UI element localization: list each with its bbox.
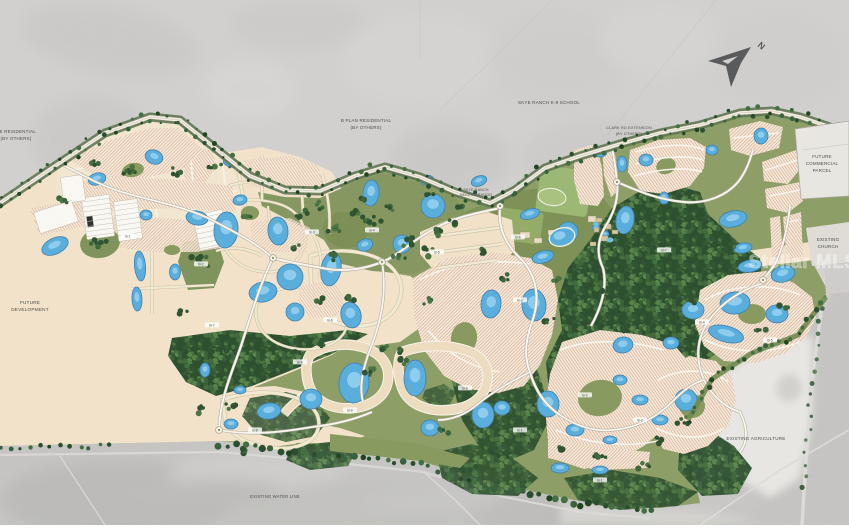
svg-text:Stellar MLS: Stellar MLS [749, 252, 849, 273]
